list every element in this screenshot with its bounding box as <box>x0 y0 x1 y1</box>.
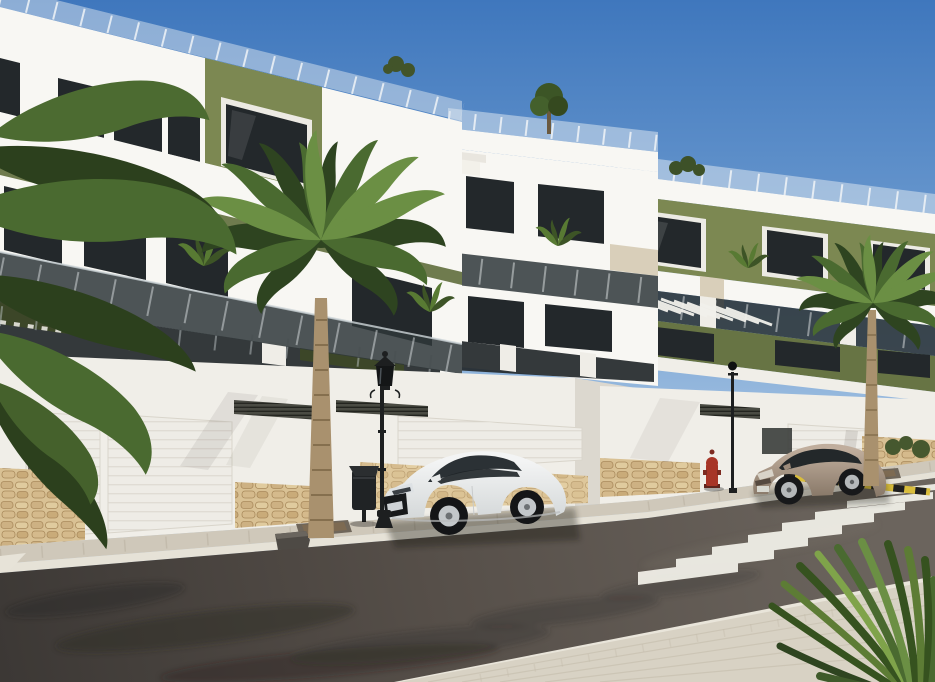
wheel-hub <box>850 480 854 484</box>
ground-pier <box>580 352 596 378</box>
render-viewport <box>0 0 935 682</box>
curb-stone-piece <box>275 531 310 550</box>
wall-doorway <box>762 428 792 454</box>
ground-pier <box>500 344 516 372</box>
street-scene <box>0 0 935 682</box>
license-plate <box>757 486 769 492</box>
wheel-hub <box>787 488 792 493</box>
building-block-middle <box>444 83 658 386</box>
wheel-hub <box>446 513 453 520</box>
wheel-hub <box>524 504 530 510</box>
